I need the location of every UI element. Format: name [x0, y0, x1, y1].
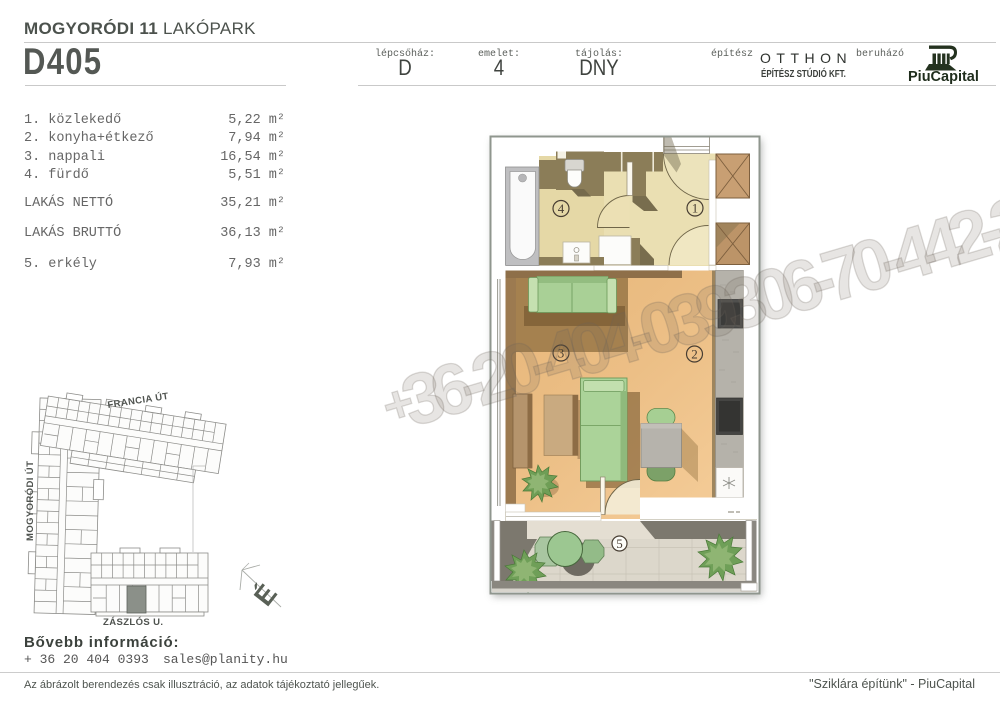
svg-text:4: 4	[558, 201, 565, 216]
svg-text:3: 3	[558, 346, 565, 361]
svg-text:5: 5	[616, 536, 623, 551]
svg-text:1: 1	[692, 201, 699, 216]
svg-text:2: 2	[691, 347, 698, 362]
